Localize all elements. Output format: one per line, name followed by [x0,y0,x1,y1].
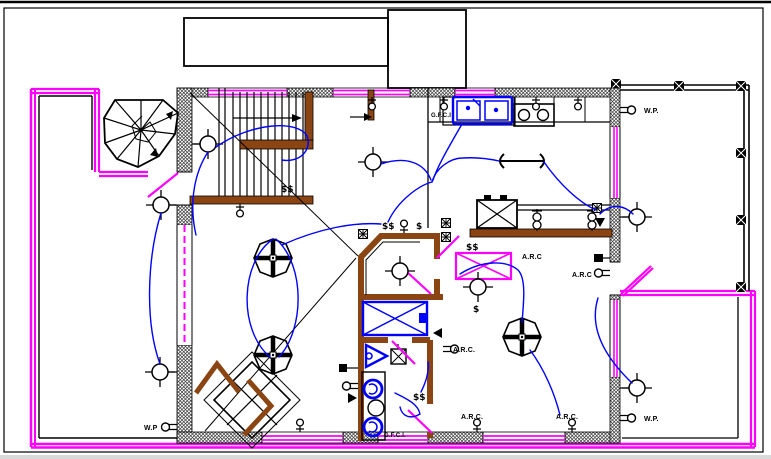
porch-column [736,148,746,158]
wall-outlet [574,97,582,110]
switch-pair: $$ [413,393,426,403]
stair-handrail [240,140,313,149]
junction-box [442,233,451,242]
island-counter [456,253,511,279]
ceiling-lights [145,129,652,403]
screen-edge [0,455,771,459]
hearth-trim [196,364,239,393]
stair-handrail [190,196,313,204]
wall-outlet [440,97,448,110]
switch-pair: $$ [466,243,479,253]
toilet [366,345,387,367]
junction-box [593,204,602,213]
roof-canopy-outline [184,10,466,88]
switch: $ [473,305,479,315]
special-outlet [594,254,610,262]
arc-receptacle [595,269,611,277]
outlet [236,204,244,217]
porch-light [622,202,652,232]
ceiling-fan [254,239,292,277]
label-gfci-kitchen: G.F.C.I [431,113,451,119]
arc-outlet [473,419,481,432]
wp-receptacle [620,414,636,422]
porch-column [674,81,684,91]
hearth-trim [244,380,271,435]
window [262,432,565,443]
switch: $ [416,222,422,232]
floor-wall-outlet [296,419,304,432]
ceiling-light [385,256,415,286]
junction-box [442,219,451,228]
porch-column [736,282,746,292]
label-wp-top-right: W.P. [644,108,659,115]
wp-receptacle [162,423,178,431]
label-gfci-bathroom: G.F.C.I. [384,433,406,439]
ceiling-fan [503,318,541,356]
label-arc-right-wall: A.R.C [572,272,592,279]
label-wp-bottom-left: W.P [144,425,158,432]
label-arc-bottom-left: A.R.C. [461,414,483,421]
receptacle [343,382,359,390]
wp-receptacle [620,106,636,114]
deck-light [145,357,175,387]
spiral-staircase [104,100,178,167]
counter-top [470,229,612,237]
label-arc-bottom-right: A.R.C. [556,414,578,421]
electrical-floor-plan: $$ $$ $ $$ $ $$ W.P. W.P. W.P G.F.C.I G.… [0,0,771,459]
door-jamb [610,262,620,295]
window [177,225,192,345]
porch-column [611,79,621,89]
deck-door-swing [148,173,178,197]
floor-plan-canvas: $$ $$ $ $$ $ $$ W.P. W.P. W.P G.F.C.I G.… [0,0,771,459]
marker-triangle [348,393,357,403]
label-arc-bathroom: A.R.C. [453,347,475,354]
label-arc-bar: A.R.C [522,254,542,261]
outlet [400,220,408,233]
bottom-right-deck-railing [620,266,755,447]
ceiling-light [358,147,388,177]
refrigerator [477,195,517,228]
stair-direction-arrow [292,114,302,122]
junction-box [359,230,368,239]
arc-outlet [568,419,576,432]
marker-triangle [433,328,442,338]
ceiling-light [463,272,493,302]
switch-pair: $$ [281,185,294,195]
porch-column [736,215,746,225]
ceiling-fan [254,336,292,374]
switch-pair: $$ [382,222,395,232]
vanity-sinks [362,372,385,440]
kitchen [368,97,610,126]
fluorescent-fixture [500,154,544,168]
label-wp-bottom-right: W.P. [644,416,659,423]
duplex-outlet [532,209,542,231]
bottom-deck-railing [31,444,755,448]
bathtub [363,302,427,335]
kitchen-sink [453,97,512,124]
stair-handrail [305,92,313,140]
porch-column [736,81,746,91]
